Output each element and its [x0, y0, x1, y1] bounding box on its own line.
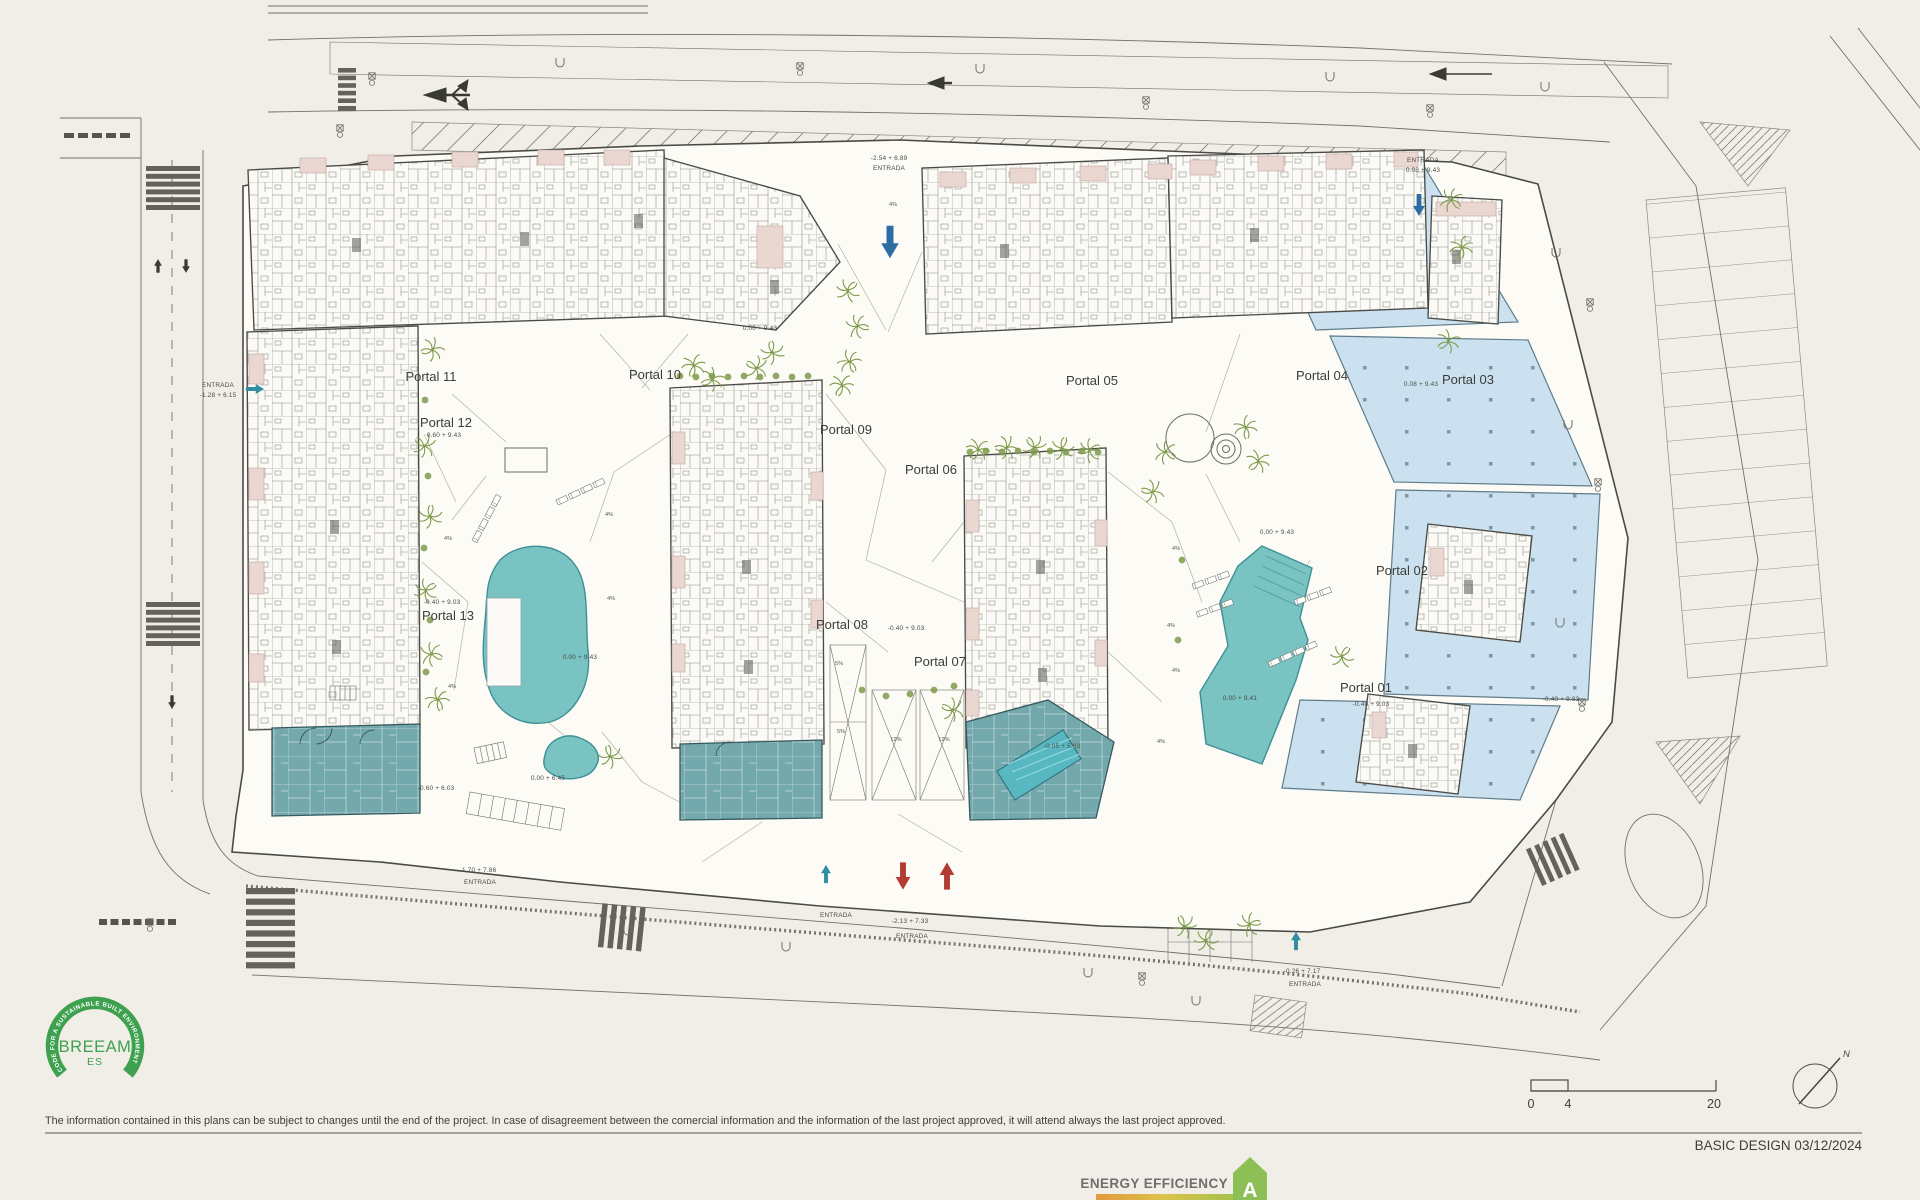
road-direction-arrow [424, 80, 470, 110]
slope-label: 12% [890, 737, 901, 743]
drain-icon [1541, 82, 1549, 91]
elevation-label: 0.00 + 9.43 [1260, 529, 1295, 536]
road-dashes [99, 919, 176, 925]
bush-icon [693, 374, 700, 381]
elevation-label: -0.40 + 9.03 [888, 625, 925, 632]
road-dashes [64, 133, 130, 138]
bush-icon [421, 545, 428, 552]
bush-icon [757, 374, 764, 381]
elevation-label: ENTRADA [1289, 981, 1321, 988]
elevation-label: -2.13 + 7.33 [892, 918, 929, 925]
portal-label: Portal 06 [905, 462, 957, 477]
zebra-crossing [1526, 833, 1580, 886]
up-arrow-icon [1291, 932, 1301, 950]
portal-label: Portal 08 [816, 617, 868, 632]
bush-icon [1095, 449, 1102, 456]
slope-label: 4% [605, 512, 613, 518]
road-direction-arrow [1430, 68, 1492, 80]
elevation-label: -1.70 + 7.86 [460, 867, 497, 874]
site-plan-drawing: Portal 01Portal 02Portal 03Portal 04Port… [0, 0, 1920, 1200]
bush-icon [859, 687, 866, 694]
slope-label: 5% [837, 729, 845, 735]
slope-label: 4% [1167, 623, 1175, 629]
slope-label: 4% [1172, 668, 1180, 674]
building-portal-11-10 [248, 150, 670, 330]
bush-icon [741, 373, 748, 380]
elevation-label: 0.08 + 9.43 [1404, 381, 1439, 388]
portal-label: Portal 13 [422, 608, 474, 623]
pool-deck [487, 598, 521, 686]
zebra-crossing [146, 166, 200, 210]
bush-icon [789, 374, 796, 381]
bush-icon [951, 683, 958, 690]
energy-efficiency-label: ENERGY EFFICIENCY [1080, 1176, 1228, 1191]
slope-label: 4% [607, 596, 615, 602]
elevation-label: ENTRADA [896, 933, 928, 940]
portal-label: Portal 01 [1340, 680, 1392, 695]
amenity-block-west [272, 724, 420, 816]
street-lamp-icon [1587, 299, 1593, 312]
portal-label: Portal 03 [1442, 372, 1494, 387]
portal-label: Portal 12 [420, 415, 472, 430]
drain-icon [782, 942, 790, 951]
elevation-label: 0.00 + 6.45 [531, 775, 566, 782]
street-lamp-icon [337, 125, 343, 138]
breeam-region: ES [87, 1056, 103, 1068]
breeam-logo: CODE FOR A SUSTAINABLE BUILT ENVIRONMENT… [49, 1000, 140, 1073]
bush-icon [805, 373, 812, 380]
portal-label: Portal 04 [1296, 368, 1348, 383]
elevation-label: -0.26 + 7.17 [1284, 968, 1321, 975]
scale-0: 0 [1528, 1097, 1535, 1111]
elevation-label: -0.40 + 9.83 [1543, 696, 1580, 703]
drain-icon [1326, 72, 1334, 81]
street-lamp-icon [1143, 97, 1149, 110]
elevation-label: ENTRADA [464, 879, 496, 886]
building-portal-02 [1416, 524, 1532, 642]
elevation-label: 0.60 + 9.43 [427, 432, 462, 439]
bush-icon [422, 397, 429, 404]
basic-design-label: BASIC DESIGN 03/12/2024 [1695, 1138, 1863, 1153]
slope-label: 4% [889, 202, 897, 208]
street-lamp-icon [1427, 105, 1433, 118]
portal-label: Portal 09 [820, 422, 872, 437]
street-lamp-icon [1139, 973, 1145, 986]
drain-icon [1084, 968, 1092, 977]
bush-icon [999, 449, 1006, 456]
elevation-label: ENTRADA [873, 165, 905, 172]
elevation-label: -0.05 + 5.83 [1044, 743, 1081, 750]
slope-label: 4% [1172, 546, 1180, 552]
bush-icon [1179, 557, 1186, 564]
elevation-label: -0.40 + 9.03 [1353, 701, 1390, 708]
elevation-label: -0.60 + 6.03 [418, 785, 455, 792]
bush-icon [907, 691, 914, 698]
slope-label: 12% [938, 737, 949, 743]
scale-20: 20 [1707, 1097, 1721, 1111]
bush-icon [1031, 449, 1038, 456]
amenity-block-center [680, 740, 822, 820]
energy-efficiency-badge: ENERGY EFFICIENCY A [1080, 1157, 1267, 1200]
zebra-crossing [246, 888, 295, 968]
slope-label: 4% [1157, 739, 1165, 745]
zebra-crossing [598, 903, 646, 951]
drain-icon [1192, 996, 1200, 1005]
slope-label: 4% [444, 536, 452, 542]
portal-label: Portal 02 [1376, 563, 1428, 578]
bush-icon [983, 448, 990, 455]
road-direction-arrow [928, 77, 952, 89]
portal-label: Portal 07 [914, 654, 966, 669]
elevation-label: -1.28 + 6.15 [200, 392, 237, 399]
elevation-label: ENTRADA [202, 382, 234, 389]
palm-tree-icon [1192, 927, 1220, 953]
bush-icon [425, 473, 432, 480]
bush-icon [931, 687, 938, 694]
north-label: N [1843, 1049, 1850, 1060]
bush-icon [1015, 448, 1022, 455]
north-compass: N [1793, 1049, 1850, 1108]
slope-label: 4% [448, 684, 456, 690]
bush-icon [1079, 448, 1086, 455]
energy-rating: A [1242, 1179, 1257, 1200]
disclaimer-text: The information contained in this plans … [45, 1115, 1226, 1127]
bush-icon [709, 373, 716, 380]
drain-icon [556, 58, 564, 67]
bush-icon [1175, 637, 1182, 644]
bush-icon [967, 449, 974, 456]
elevation-label: -2.54 + 6.89 [871, 155, 908, 162]
scale-4: 4 [1565, 1097, 1572, 1111]
portal-label: Portal 05 [1066, 373, 1118, 388]
bush-icon [423, 669, 430, 676]
scale-bar: 0 4 20 [1528, 1080, 1721, 1111]
portal-label: Portal 11 [405, 369, 456, 384]
bush-icon [1063, 449, 1070, 456]
elevation-label: 0.00 + 9.43 [563, 654, 598, 661]
street-lamp-icon [797, 63, 803, 76]
slope-label: 5% [835, 661, 843, 667]
breeam-name: BREEAM [59, 1038, 132, 1056]
site-plan-sheet: Portal 01Portal 02Portal 03Portal 04Port… [0, 0, 1920, 1200]
elevation-label: ENTRADA [1407, 157, 1439, 164]
bush-icon [773, 373, 780, 380]
elevation-label: ENTRADA [820, 912, 852, 919]
zebra-crossing [146, 602, 200, 646]
elevation-label: 0.00 + 9.41 [1223, 695, 1258, 702]
elevation-label: 0.00 + 9.43 [743, 325, 778, 332]
drain-icon [976, 64, 984, 73]
portal-label: Portal 10 [629, 367, 681, 382]
bush-icon [725, 374, 732, 381]
bush-icon [1047, 448, 1054, 455]
pergola [505, 448, 547, 472]
bush-icon [883, 693, 890, 700]
elevation-label: -0.40 + 9.03 [424, 599, 461, 606]
elevation-label: 0.08 + 9.43 [1406, 167, 1441, 174]
